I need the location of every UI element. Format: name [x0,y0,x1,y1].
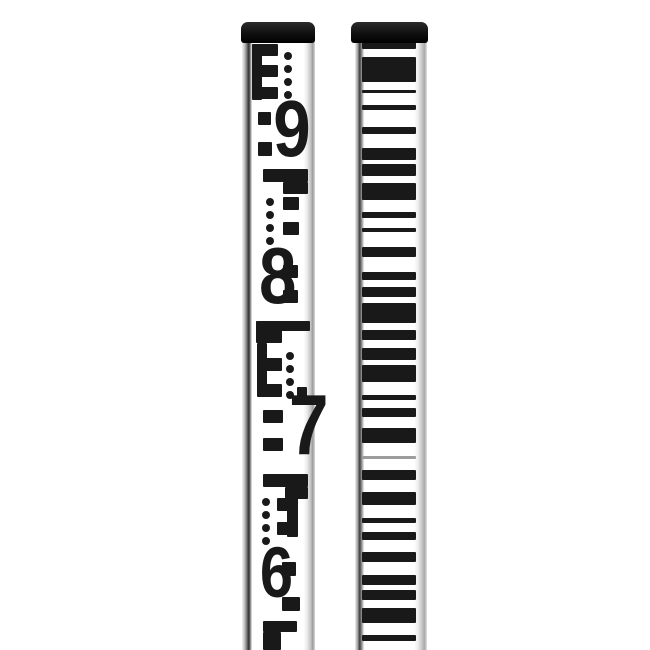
barcode-stripe [362,428,416,443]
staff-digit-6: 6 [260,546,280,601]
graduation-dot [284,52,292,60]
barcode-stripe [362,212,416,218]
graduation-dot [286,365,294,373]
graduation-dot [262,498,270,506]
graduation-block [282,597,300,611]
barcode-stripe [362,90,416,93]
graduation-block [263,632,281,650]
graduation-block [258,142,272,156]
barcode-stripe [362,105,416,110]
graduation-block [283,290,298,303]
staff-top-cap [241,22,315,43]
barcode-stripe [362,348,416,360]
barcode-stripe [362,456,416,459]
barcode-stripe [362,247,416,257]
barcode-stripe [362,164,416,176]
staff-digit-7: 7 [289,393,309,459]
barcode-stripe [362,518,416,523]
graduation-dot [266,198,274,206]
graduation-dot [262,524,270,532]
staff-digit-8: 8 [259,245,280,307]
barcode-stripe [362,575,416,585]
barcode-stripe [362,183,416,200]
barcode-stripe [362,42,416,49]
leveling-staff-product-photo: 9876 [0,0,650,650]
graduation-block [283,197,299,210]
barcode-stripe [362,470,416,480]
graduation-block [263,474,308,487]
barcode-stripe [362,395,416,400]
graduation-block [252,44,278,56]
barcode-stripe [362,272,416,280]
barcode-face [351,22,428,650]
barcode-stripe [362,492,416,505]
barcode-stripe [362,57,416,82]
barcode-staff [351,22,428,650]
graduation-dot [286,352,294,360]
graduation-dot [262,511,270,519]
staff-digit-9: 9 [273,98,297,160]
graduation-block [258,112,271,125]
graduation-block [283,265,298,278]
graduation-block [252,65,278,77]
barcode-stripe [362,408,416,417]
graduation-block [263,169,308,182]
graduation-block [256,321,282,343]
graduation-block [263,438,283,451]
graduation-block [287,496,298,537]
barcode-stripe [362,365,416,382]
barcode-stripe [362,330,416,340]
barcode-stripe [362,552,416,562]
barcode-stripe [362,303,416,323]
graduation-block [263,621,297,632]
barcode-stripe [362,608,416,623]
graduation-block [283,182,308,194]
barcode-stripe [362,635,416,641]
graduation-block [282,562,296,576]
e-face-staff: 9876 [241,22,315,650]
graduation-block [257,358,282,371]
barcode-stripe [362,590,416,600]
graduation-dot [284,65,292,73]
graduation-block [257,384,282,397]
barcode-stripe [362,148,416,160]
barcode-stripe [362,287,416,297]
e-graduation-face: 9876 [241,22,315,650]
barcode-stripe [362,532,416,540]
graduation-dot [266,211,274,219]
barcode-stripe [362,127,416,134]
graduation-block [263,410,283,423]
staff-top-cap [351,22,428,43]
barcode-stripe [362,228,416,232]
